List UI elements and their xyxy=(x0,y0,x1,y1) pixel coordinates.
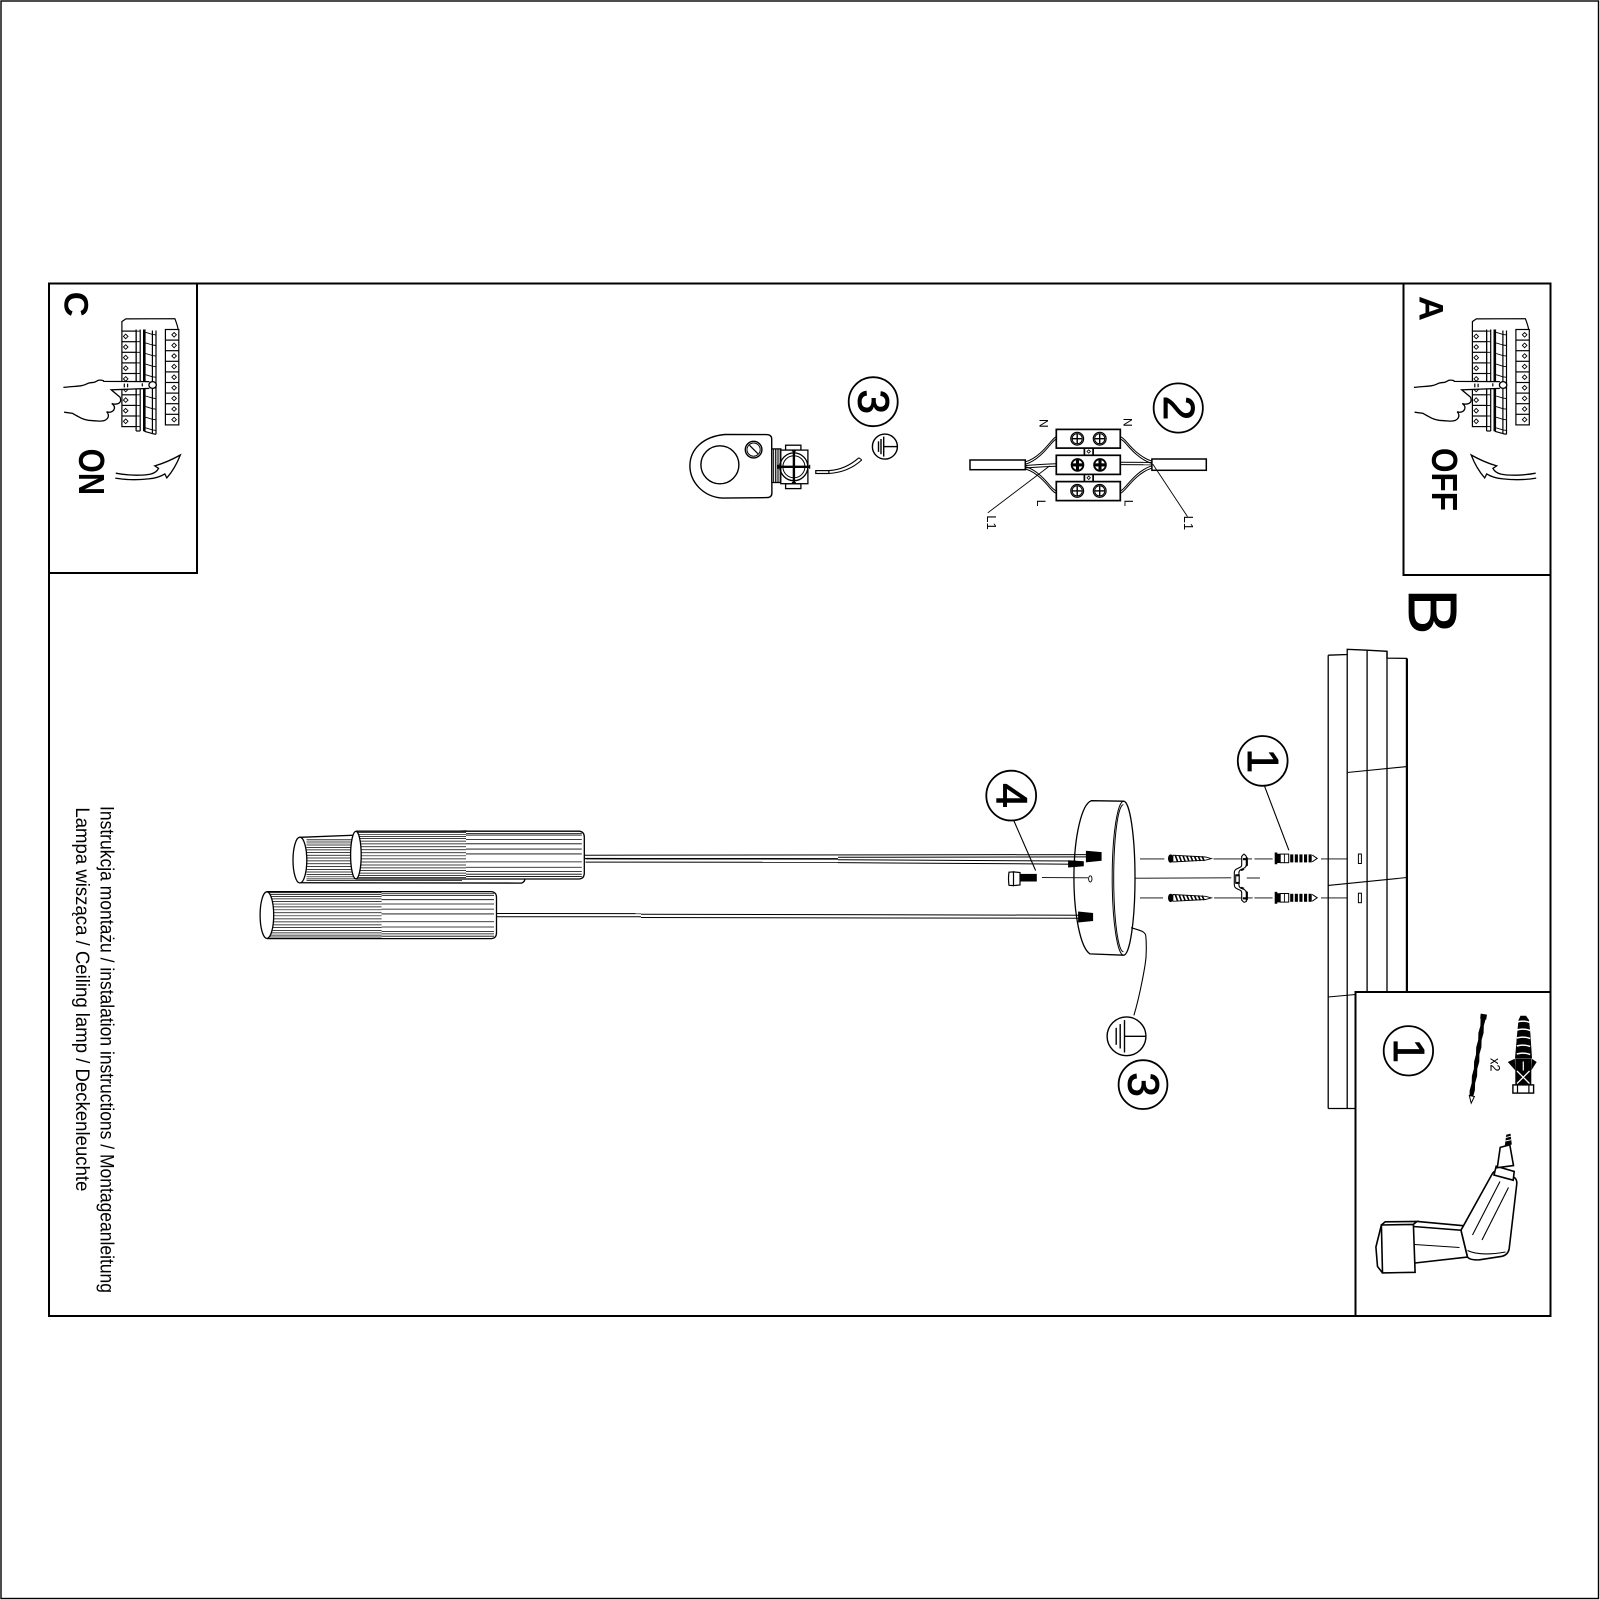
svg-text:Lampa wisząca / Ceiling lamp /: Lampa wisząca / Ceiling lamp / Deckenleu… xyxy=(71,807,92,1191)
svg-text:Instrukcja montażu / instalati: Instrukcja montażu / instalation instruc… xyxy=(96,806,117,1293)
svg-text:3: 3 xyxy=(1119,1072,1168,1096)
svg-text:4: 4 xyxy=(987,783,1036,807)
svg-text:OFF: OFF xyxy=(1424,448,1465,511)
svg-text:L1: L1 xyxy=(984,515,999,529)
svg-text:B: B xyxy=(1394,588,1471,634)
svg-text:2: 2 xyxy=(1154,396,1203,420)
svg-text:3: 3 xyxy=(849,389,898,413)
svg-text:N: N xyxy=(1121,418,1135,427)
svg-text:ON: ON xyxy=(71,449,112,496)
svg-text:A: A xyxy=(1412,296,1450,321)
svg-text:x2: x2 xyxy=(1487,1058,1503,1072)
svg-text:C: C xyxy=(56,292,94,317)
svg-text:1: 1 xyxy=(1238,749,1287,773)
svg-text:L: L xyxy=(1122,500,1136,507)
svg-text:N: N xyxy=(1036,419,1050,428)
svg-text:L: L xyxy=(1034,500,1048,507)
svg-text:L1: L1 xyxy=(1181,516,1196,530)
svg-text:1: 1 xyxy=(1384,1039,1433,1063)
